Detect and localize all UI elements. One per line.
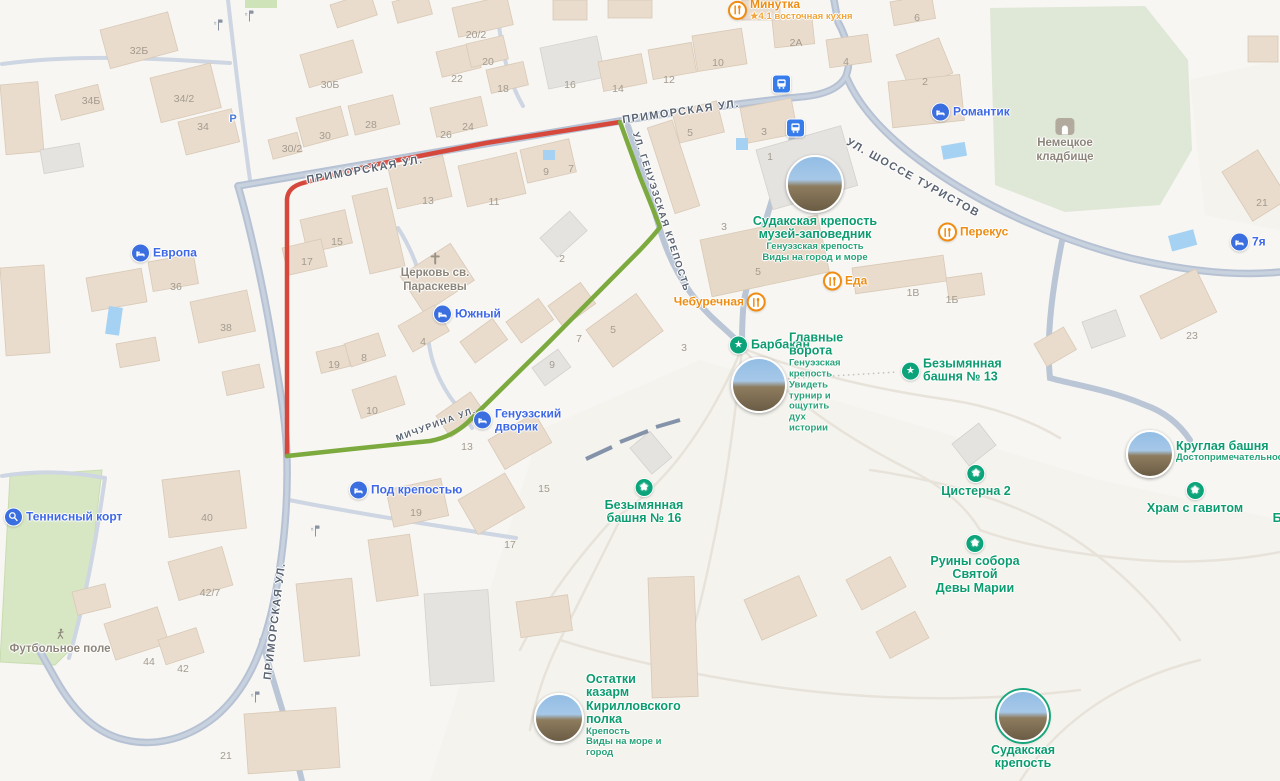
house-number: 22 <box>451 73 463 85</box>
poi-sight-hram-s-gavitom[interactable]: ★Храм с гавитом <box>1147 481 1243 515</box>
label-line: Увидеть турнир и <box>789 380 843 402</box>
house-number: 9 <box>543 166 549 178</box>
bus-stop-icon[interactable] <box>214 19 225 32</box>
house-number: 9 <box>549 359 555 371</box>
house-number: 42/7 <box>200 587 220 599</box>
poi-food-eda[interactable]: Еда <box>823 272 867 291</box>
house-number: 3 <box>681 342 687 354</box>
house-number: 12 <box>663 74 675 86</box>
label-line: Генуэзский <box>495 407 561 420</box>
star-icon: ★ <box>729 336 748 355</box>
photo-thumbnail <box>731 357 787 413</box>
label-line: Виды на город и море <box>753 253 877 264</box>
poi-photo-glavnye-vorota[interactable]: Главные воротаГенуэзская крепостьУвидеть… <box>731 357 783 409</box>
house-number: 32Б <box>130 45 149 57</box>
poi-hotel-evropa[interactable]: Европа <box>131 244 197 263</box>
house-number: 2 <box>559 253 565 265</box>
house-number: 34Б <box>82 95 101 107</box>
house-number: 30Б <box>321 79 340 91</box>
house-number: 20/2 <box>466 29 486 41</box>
house-number: 8 <box>361 352 367 364</box>
poi-food-cheburechnaya[interactable]: Чебуречная <box>674 293 766 312</box>
parking-icon[interactable]: Р <box>229 113 236 125</box>
label-line: башня № 13 <box>923 371 1002 384</box>
poi-photo-ostatki-kazarm[interactable]: Остатки казармКирилловского полкаКрепост… <box>534 693 580 739</box>
rating-text: ★4.1 восточная кухня <box>750 11 853 22</box>
house-number: 15 <box>538 483 550 495</box>
poi-hotel-genuezsky-dvorik[interactable]: Генуэзскийдворик <box>473 407 561 432</box>
house-number: 4 <box>420 336 426 348</box>
bed-icon <box>473 411 492 430</box>
bus-stop-icon[interactable] <box>245 10 256 23</box>
house-number: 21 <box>220 750 232 762</box>
house-number: 34 <box>197 121 209 133</box>
poi-sight-ruiny-sobora[interactable]: ★Руины собораСвятойДевы Марии <box>930 534 1019 595</box>
map-canvas[interactable]: ПРИМОРСКАЯ УЛ.ПРИМОРСКАЯ УЛ.УЛ. ШОССЕ ТУ… <box>0 0 1280 781</box>
star-icon: ★ <box>967 464 986 483</box>
bus-stop-icon[interactable] <box>311 525 322 538</box>
house-number: 16 <box>564 79 576 91</box>
photo-thumbnail <box>534 693 584 743</box>
house-number: 10 <box>712 57 724 69</box>
house-number: 44 <box>143 656 155 668</box>
label-line: Параскевы <box>401 281 470 295</box>
house-number: 2 <box>922 76 928 88</box>
house-number: 3 <box>761 126 767 138</box>
poi-hotel-romantik[interactable]: Романтик <box>931 103 1010 122</box>
label-line: Виды на море и город <box>586 737 681 759</box>
poi-food-minutka[interactable]: Минутка★4.1 восточная кухня <box>728 0 853 22</box>
restaurant-icon <box>823 272 842 291</box>
label-line: Футбольное поле <box>10 643 111 657</box>
house-number: 5 <box>610 324 616 336</box>
label-line: Немецкое <box>1036 137 1093 151</box>
label-line: Безымянная <box>1273 512 1280 525</box>
house-number: 42 <box>177 663 189 675</box>
restaurant-icon <box>938 223 957 242</box>
house-number: 26 <box>440 129 452 141</box>
house-number: 11 <box>489 196 500 208</box>
house-number: 36 <box>170 281 182 293</box>
house-number: 10 <box>366 405 378 417</box>
house-number: 14 <box>612 83 624 95</box>
player-icon <box>55 628 65 641</box>
label-line: Теннисный корт <box>26 511 122 524</box>
label-line: Европа <box>153 247 197 260</box>
label-line: башня <box>1273 525 1280 538</box>
poi-photo-sudakskaya-krepost-muzey[interactable]: Судакская крепостьмузей-заповедникГенуэз… <box>753 155 877 264</box>
house-number: 7 <box>576 333 582 345</box>
cemetery-area <box>990 6 1192 212</box>
house-number: 19 <box>328 359 340 371</box>
tennis-icon <box>4 508 23 527</box>
poi-football-field: Футбольное поле <box>10 628 111 657</box>
label-line: крепость <box>991 757 1055 770</box>
cross-icon <box>429 252 442 265</box>
house-number: 17 <box>301 256 313 268</box>
label-line: кладбище <box>1036 151 1093 165</box>
bed-icon <box>433 305 452 324</box>
poi-sight-bezymyannaya-13[interactable]: ★Безымяннаябашня № 13 <box>901 358 1002 385</box>
house-number: 17 <box>504 539 516 551</box>
poi-hotel-7ya[interactable]: 7я <box>1230 233 1266 252</box>
house-number: 7 <box>568 163 574 175</box>
house-number: 28 <box>365 119 377 131</box>
house-number: 1В <box>907 287 920 299</box>
label-line: Кирилловского полка <box>586 700 681 727</box>
restaurant-icon <box>747 293 766 312</box>
star-icon: ★ <box>635 478 654 497</box>
house-number: 13 <box>422 195 434 207</box>
poi-food-perekus[interactable]: Перекус <box>938 223 1008 242</box>
label-line: Романтик <box>953 106 1010 119</box>
label-line: музей-заповедник <box>753 228 877 241</box>
poi-cemetery[interactable]: Немецкоекладбище <box>1036 118 1093 165</box>
poi-hotel-tennisny-kort[interactable]: Теннисный корт <box>4 508 122 527</box>
mausoleum-icon <box>1055 118 1074 135</box>
label-line: Церковь св. <box>401 267 470 281</box>
house-number: 30/2 <box>282 143 302 155</box>
photo-thumbnail <box>786 155 844 213</box>
label-line: Остатки казарм <box>586 673 681 700</box>
label-line: ощутить дух истории <box>789 402 843 435</box>
restaurant-icon <box>728 1 747 20</box>
house-number: 40 <box>201 512 213 524</box>
house-number: 19 <box>410 507 422 519</box>
house-number: 2А <box>790 37 803 49</box>
star-icon: ★ <box>965 534 984 553</box>
house-number: 5 <box>755 266 761 278</box>
house-number: 30 <box>319 130 331 142</box>
label-line: Святой <box>930 568 1019 581</box>
house-number: 1Б <box>946 294 959 306</box>
house-number: 13 <box>461 441 473 453</box>
house-number: 5 <box>687 127 693 139</box>
label-line: Храм с гавитом <box>1147 502 1243 515</box>
label-line: Генуэзская крепость <box>789 358 843 380</box>
label-line: башня № 16 <box>605 512 684 525</box>
label-line: дворик <box>495 420 561 433</box>
house-number: 24 <box>462 121 474 133</box>
house-number: 20 <box>482 56 494 68</box>
bus-stop-icon[interactable] <box>251 691 262 704</box>
bed-icon <box>349 481 368 500</box>
bed-icon <box>1230 233 1249 252</box>
bed-icon <box>931 103 950 122</box>
bus-route-icon[interactable] <box>772 75 791 94</box>
label-line: Южный <box>455 308 501 321</box>
poi-hotel-pod-krepostyu[interactable]: Под крепостью <box>349 481 462 500</box>
house-number: 38 <box>220 322 232 334</box>
house-number: 6 <box>914 12 920 24</box>
house-number: 4 <box>843 56 849 68</box>
poi-photo-sudakskaya-krepost[interactable]: Судакскаякрепость <box>991 690 1055 771</box>
label-line: Главные ворота <box>789 331 843 358</box>
poi-photo-kruglaya-bashnya[interactable]: Круглая башняДостопримечательность <box>1126 430 1170 474</box>
poi-church[interactable]: Церковь св.Параскевы <box>401 252 470 295</box>
house-number: 15 <box>331 236 343 248</box>
house-number: 18 <box>497 83 509 95</box>
house-number: 23 <box>1186 330 1198 342</box>
photo-thumbnail <box>997 690 1049 742</box>
bed-icon <box>131 244 150 263</box>
photo-thumbnail <box>1126 430 1174 478</box>
label-line: 7я <box>1252 236 1266 249</box>
label-line: Девы Марии <box>930 582 1019 595</box>
star-icon: ★ <box>901 362 920 381</box>
star-icon: ★ <box>1186 481 1205 500</box>
house-number: 3 <box>721 221 727 233</box>
poi-sight-bezymyannaya-16[interactable]: ★Безымяннаябашня № 16 <box>605 478 684 526</box>
poi-sight-cisterna-2[interactable]: ★Цистерна 2 <box>941 464 1010 498</box>
label-line: Достопримечательность <box>1176 453 1280 464</box>
house-number: 21 <box>1256 197 1268 209</box>
label-line: Цистерна 2 <box>941 485 1010 498</box>
house-number: 34/2 <box>174 93 194 105</box>
bus-route-icon[interactable] <box>786 119 805 138</box>
poi-hotel-yuzhny[interactable]: Южный <box>433 305 501 324</box>
label-line: Под крепостью <box>371 484 462 497</box>
poi-sight-bezymyannaya-edge[interactable]: ★Безымяннаябашня <box>1273 491 1280 539</box>
